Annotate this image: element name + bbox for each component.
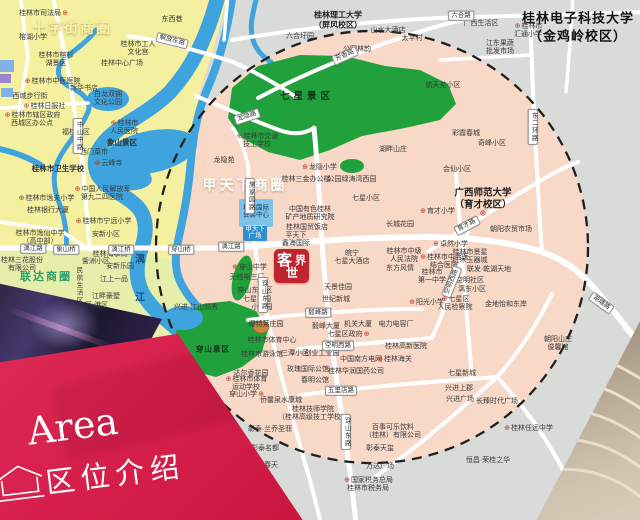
logo-char: 界 bbox=[295, 252, 306, 268]
project-logo-keshijie: 客 世 界 bbox=[274, 249, 309, 283]
location-map-page: 十字街商圈甲天下商圈联达商圈七星景区穿山景区桂林电子科技大学（金鸡岭校区）桂林理… bbox=[0, 0, 640, 520]
banner-title-en: Area bbox=[25, 399, 120, 454]
building-icon bbox=[0, 460, 46, 507]
photo-glow bbox=[30, 300, 100, 350]
park-lake bbox=[163, 306, 203, 330]
stadium-icon bbox=[253, 321, 269, 333]
banner-title-zh: 区位介绍 bbox=[43, 443, 187, 502]
